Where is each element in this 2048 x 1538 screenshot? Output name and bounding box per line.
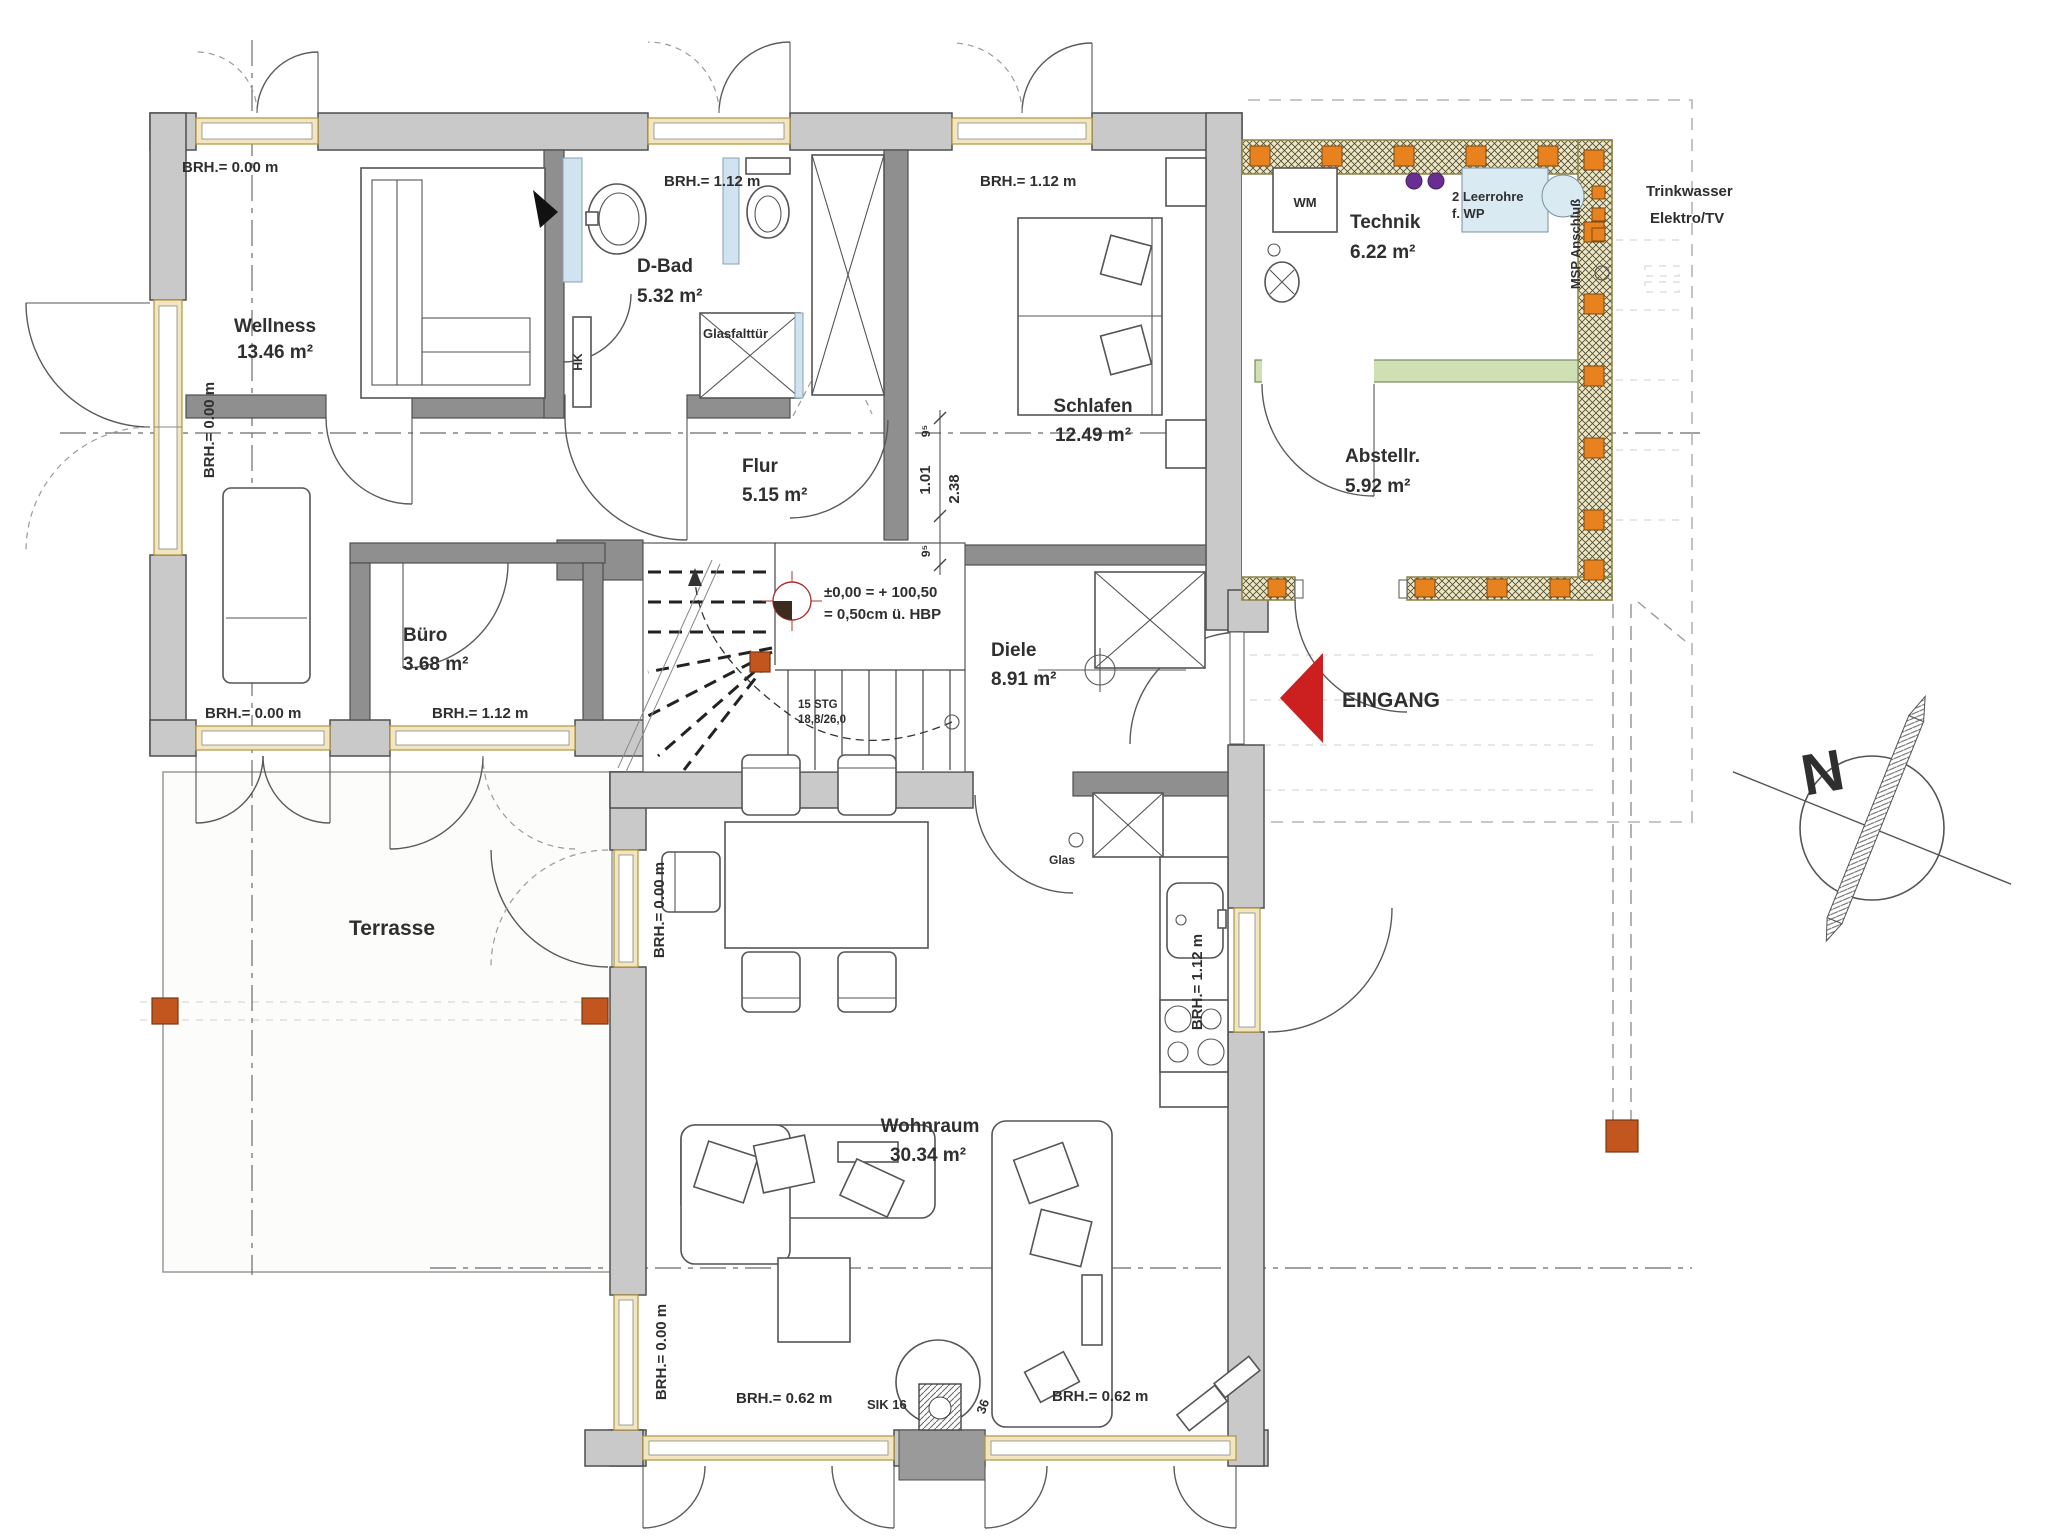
empty-conduit-2	[1428, 173, 1444, 189]
room-label-diele: Diele	[991, 640, 1036, 661]
floor-plan-canvas: Wellness 13.46 m² D-Bad 5.32 m² Schlafen…	[0, 0, 2048, 1538]
radiator-label: HK	[571, 353, 585, 371]
entrance-label: EINGANG	[1342, 689, 1440, 712]
room-label-schlafen: Schlafen	[1053, 396, 1132, 417]
room-area-schlafen: 12.49 m²	[1055, 425, 1131, 446]
electric-label: Elektro/TV	[1650, 210, 1724, 227]
window-wohnraum-left-low	[614, 1295, 638, 1430]
sill-label-kitchen: BRH.= 1.12 m	[1189, 934, 1206, 1030]
window-wing-bottom-left	[196, 726, 330, 750]
sauna	[361, 168, 558, 398]
corner-fixture-1	[1177, 1385, 1227, 1430]
room-label-terrasse: Terrasse	[349, 917, 435, 940]
room-label-wellness: Wellness	[234, 316, 316, 337]
sill-label-bottom-left: BRH.= 0.62 m	[736, 1390, 832, 1407]
room-label-buero: Büro	[403, 625, 447, 646]
bathroom-sink	[563, 158, 646, 282]
level-note-line2: = 0,50cm ü. HBP	[824, 606, 941, 623]
window-dbad-top	[648, 118, 790, 144]
wardrobe-diele	[1095, 572, 1205, 668]
sill-label-schlafen: BRH.= 1.12 m	[980, 173, 1076, 190]
window-wellness-top	[196, 118, 318, 144]
room-area-wohnraum: 30.34 m²	[890, 1145, 966, 1166]
washing-machine-label: WM	[1293, 195, 1316, 210]
ottoman	[778, 1258, 850, 1342]
stair-note-line2: 18,8/26,0	[798, 714, 846, 726]
sill-label-bottom-right: BRH.= 0.62 m	[1052, 1388, 1148, 1405]
terrace-post-right	[582, 998, 608, 1024]
dim-mid-right: 2.38	[946, 474, 963, 503]
nightstand-top	[1166, 158, 1206, 206]
sill-label-left-wall: BRH.= 0.00 m	[201, 382, 218, 478]
sill-label-wohnraum-left: BRH.= 0.00 m	[653, 1304, 670, 1400]
floor-plan: Wellness 13.46 m² D-Bad 5.32 m² Schlafen…	[0, 0, 2048, 1538]
window-schlafen-top	[952, 118, 1092, 144]
wellness-lounger	[223, 488, 310, 683]
room-area-dbad: 5.32 m²	[637, 286, 702, 307]
compass	[1687, 640, 2048, 997]
sill-label-dbad: BRH.= 1.12 m	[664, 173, 760, 190]
sill-label-terrace-door: BRH.= 0.00 m	[651, 862, 668, 958]
sofa-right	[992, 1121, 1112, 1427]
level-note-line1: ±0,00 = + 100,50	[824, 584, 937, 601]
water-label: Trinkwasser	[1646, 183, 1733, 200]
room-area-buero: 3.68 m²	[403, 654, 468, 675]
compass-north-label: N	[1796, 737, 1849, 808]
terrace-post-left	[152, 998, 178, 1024]
dim-bottom: 9⁵	[919, 545, 933, 557]
entrance-arrow-icon	[1280, 653, 1323, 743]
conduit-label-line1: 2 Leerrohre	[1452, 189, 1524, 204]
dim-top: 9⁵	[919, 425, 933, 437]
room-label-dbad: D-Bad	[637, 256, 693, 277]
shower-door-label: Glasfalttür	[703, 326, 768, 341]
porch-post	[1606, 1120, 1638, 1152]
window-wohnraum-bottom-left	[643, 1436, 894, 1460]
window-terrace-door	[614, 850, 638, 967]
room-label-wohnraum: Wohnraum	[881, 1116, 980, 1137]
room-label-technik: Technik	[1350, 212, 1421, 233]
empty-conduit-1	[1406, 173, 1422, 189]
nightstand-bottom	[1166, 420, 1206, 468]
room-label-abstellraum: Abstellr.	[1345, 446, 1420, 467]
window-wohnraum-bottom-right	[985, 1436, 1236, 1460]
compass-needle-icon	[1827, 716, 1923, 924]
sill-label-wing-bottom: BRH.= 0.00 m	[205, 705, 301, 722]
entrance	[1280, 653, 1323, 743]
stair-note-line1: 15 STG	[798, 699, 838, 711]
wardrobe-dbad	[812, 155, 884, 395]
room-area-wellness: 13.46 m²	[237, 342, 313, 363]
sill-label-top-left: BRH.= 0.00 m	[182, 159, 278, 176]
chimney-label: SIK 16	[867, 1397, 907, 1412]
dim-mid-left: 1.01	[917, 465, 934, 494]
room-area-flur: 5.15 m²	[742, 485, 807, 506]
conduit-label-line2: f. WP	[1452, 206, 1485, 221]
msp-label: MSP Anschluß	[1568, 199, 1583, 289]
bed	[1018, 218, 1162, 415]
room-area-diele: 8.91 m²	[991, 669, 1056, 690]
stair-newel-post	[750, 652, 770, 672]
room-area-abstellraum: 5.92 m²	[1345, 476, 1410, 497]
glass-door-label: Glas	[1049, 853, 1075, 867]
window-kitchen-door	[1234, 908, 1260, 1032]
window-wellness-left	[154, 300, 182, 555]
room-label-flur: Flur	[742, 456, 778, 477]
window-buero-bottom	[390, 726, 575, 750]
room-area-technik: 6.22 m²	[1350, 242, 1415, 263]
sill-label-buero: BRH.= 1.12 m	[432, 705, 528, 722]
kitchen	[1093, 793, 1228, 1107]
chimney	[919, 1384, 961, 1430]
